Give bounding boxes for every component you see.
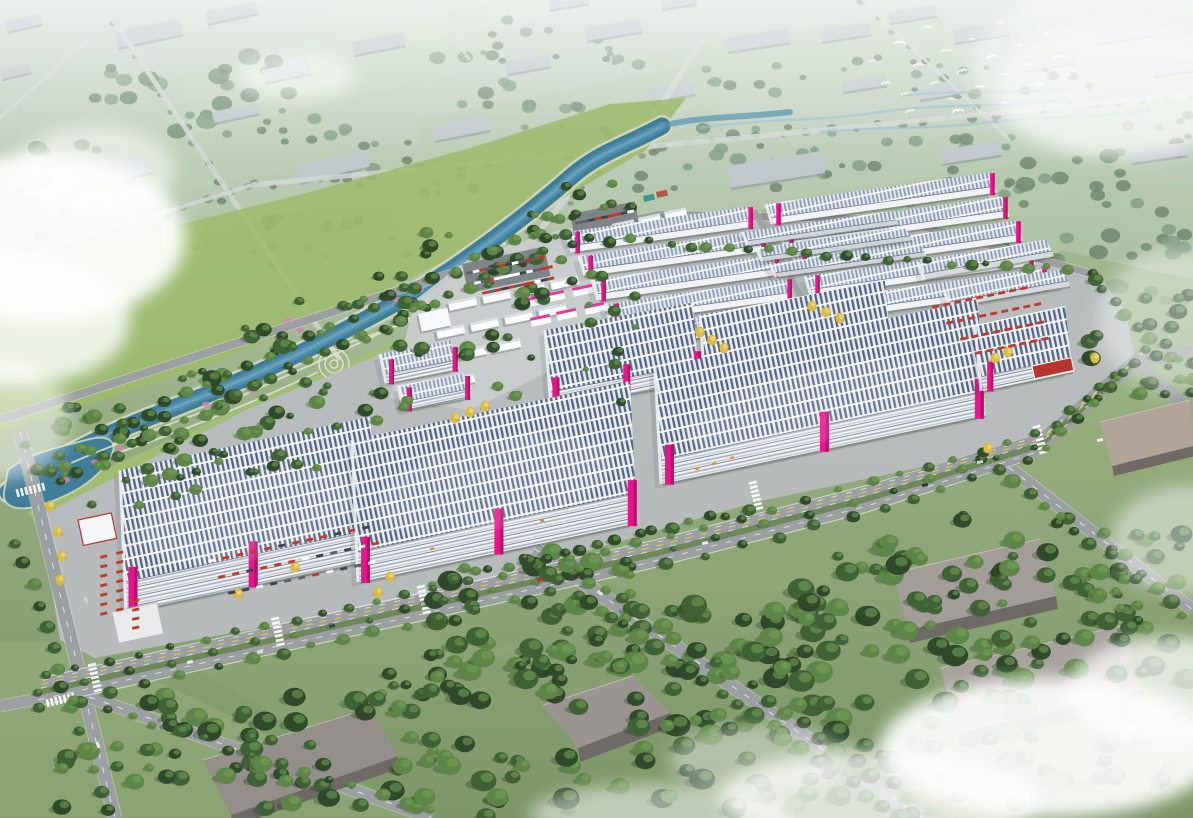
aerial-site-rendering	[0, 0, 1193, 818]
rendering-canvas	[0, 0, 1193, 818]
